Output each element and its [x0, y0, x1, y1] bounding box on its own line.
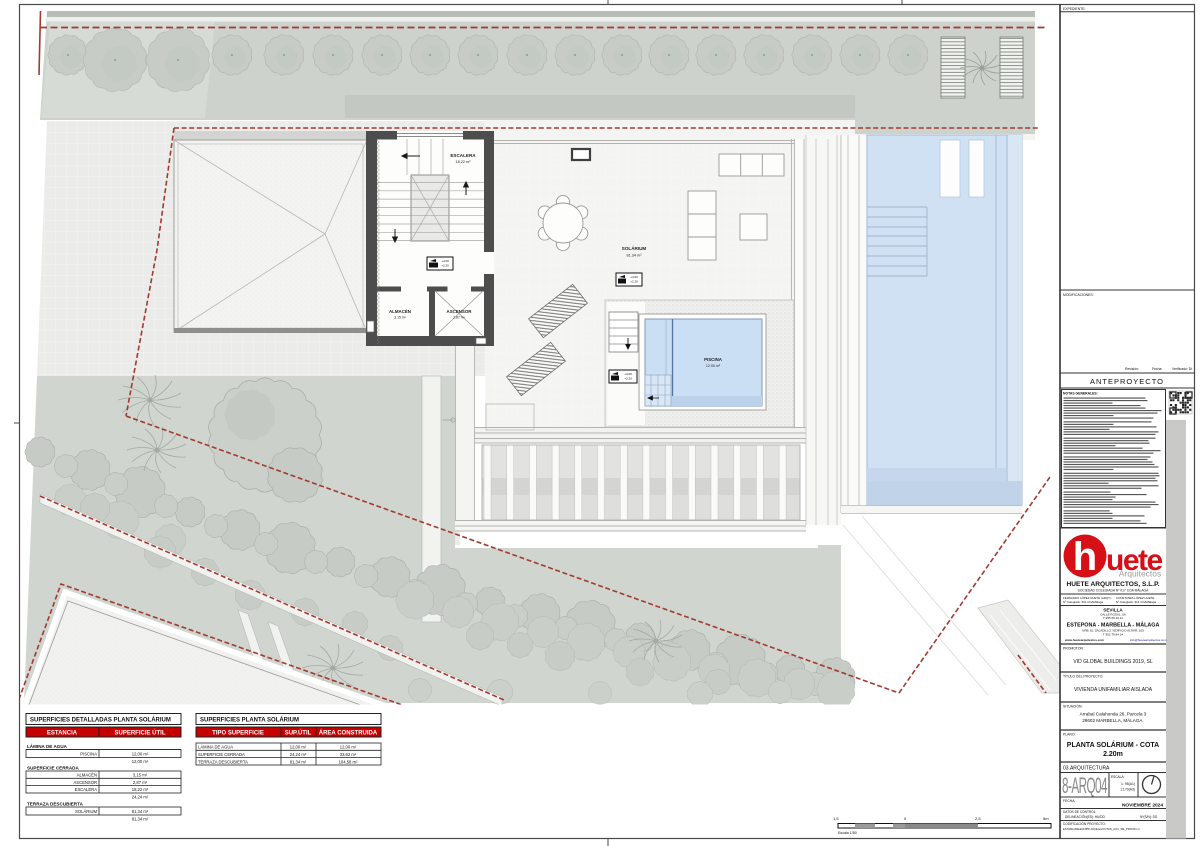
svg-text:ÁREA CONSTRUIDA: ÁREA CONSTRUIDA: [319, 730, 378, 737]
svg-text:81,34 m²: 81,34 m²: [132, 817, 149, 822]
svg-text:1,5: 1,5: [833, 816, 839, 821]
svg-text:3.15 m²: 3.15 m²: [394, 316, 406, 320]
svg-text:SOLÁRIUM: SOLÁRIUM: [75, 809, 97, 814]
svg-text:Nº(S/N): DD: Nº(S/N): DD: [1140, 815, 1158, 819]
svg-text:29602 MARBELLA, MÁLAGA.: 29602 MARBELLA, MÁLAGA.: [1082, 717, 1144, 723]
svg-text:+3.00: +3.00: [624, 372, 632, 376]
svg-text:SUPERFICIE ÚTIL: SUPERFICIE ÚTIL: [114, 730, 165, 737]
svg-text:Escala 1/50: Escala 1/50: [838, 831, 857, 835]
svg-text:PISCINA: PISCINA: [80, 752, 97, 757]
svg-text:5m: 5m: [1043, 816, 1049, 821]
svg-text:24,24 m²: 24,24 m²: [290, 752, 307, 757]
svg-text:81.34 m²: 81.34 m²: [627, 254, 643, 258]
svg-text:HUETE ARQUITECTOS, S.L.P.: HUETE ARQUITECTOS, S.L.P.: [1067, 581, 1160, 588]
svg-text:PROMOTOR :: PROMOTOR :: [1063, 647, 1085, 651]
svg-text:104,58 m²: 104,58 m²: [339, 759, 358, 764]
svg-text:T 955 69 32 11: T 955 69 32 11: [1103, 616, 1123, 620]
svg-text:LÁMINA DE AGUA: LÁMINA DE AGUA: [27, 743, 68, 749]
svg-text:ANTEPROYECTO: ANTEPROYECTO: [1090, 377, 1164, 386]
svg-text:2.87 m²: 2.87 m²: [453, 316, 465, 320]
svg-text:+2.20: +2.20: [441, 264, 449, 268]
svg-text:Arrabal Calahonda 26, Parcela: Arrabal Calahonda 26, Parcela 3: [1080, 712, 1147, 717]
svg-text:SOLÁRIUM: SOLÁRIUM: [622, 245, 647, 251]
svg-text:SUP.ÚTIL: SUP.ÚTIL: [285, 730, 312, 737]
svg-text:ESTEPONA - MARBELLA - MÁLAGA: ESTEPONA - MARBELLA - MÁLAGA: [1067, 622, 1160, 629]
svg-text:2,87 m²: 2,87 m²: [133, 780, 148, 785]
svg-text:ESTANCIA: ESTANCIA: [47, 731, 78, 737]
svg-text:+2.20: +2.20: [630, 280, 638, 284]
svg-text:TIPO SUPERFICIE: TIPO SUPERFICIE: [212, 731, 264, 737]
svg-text:3,15 m²: 3,15 m²: [133, 773, 148, 778]
svg-text:ESCALERA: ESCALERA: [75, 787, 98, 792]
svg-text:Revisión:: Revisión:: [1125, 367, 1139, 371]
svg-text:12.00 m²: 12.00 m²: [706, 364, 721, 368]
svg-text:TERRAZA DESCUBIERTA: TERRAZA DESCUBIERTA: [27, 802, 84, 807]
svg-text:18.22 m²: 18.22 m²: [456, 160, 472, 164]
svg-text:PISCINA: PISCINA: [704, 357, 723, 362]
svg-text:DATOS DE CONTROL:: DATOS DE CONTROL:: [1063, 810, 1096, 814]
svg-text:info@huetearquitectos.com: info@huetearquitectos.com: [1130, 638, 1167, 642]
svg-text:+4.00: +4.00: [441, 259, 449, 263]
svg-text:NOTAS GENERALES:: NOTAS GENERALES:: [1063, 392, 1098, 396]
svg-text:TÍTULO DEL PROYECTO:: TÍTULO DEL PROYECTO:: [1063, 675, 1103, 679]
svg-text:CODIFICACIÓN PROYECTO:: CODIFICACIÓN PROYECTO:: [1063, 821, 1106, 826]
svg-text:81,34 m²: 81,34 m²: [290, 759, 307, 764]
svg-text:SUPERFICIE CERRADA: SUPERFICIE CERRADA: [27, 766, 79, 771]
svg-text:PLANTA SOLÁRIUM - COTA: PLANTA SOLÁRIUM - COTA: [1067, 740, 1159, 749]
svg-text:ESTARLI/DEall/23PR.23/plicas/C: ESTARLI/DEall/23PR.23/plicas/COTAS_AUX_R…: [1063, 827, 1140, 831]
svg-text:VIVIENDA UNIFAMILIAR AISLADA: VIVIENDA UNIFAMILIAR AISLADA: [1074, 687, 1153, 693]
svg-text:ESCALERA: ESCALERA: [450, 153, 476, 158]
svg-text:24,24 m²: 24,24 m²: [132, 795, 149, 800]
svg-text:ALMACÉN: ALMACÉN: [389, 309, 411, 314]
svg-text:ALMACÉN: ALMACÉN: [77, 773, 97, 778]
svg-text:12,00 m²: 12,00 m²: [290, 745, 307, 750]
svg-text:8-ARQ04: 8-ARQ04: [1062, 773, 1107, 798]
svg-text:FECHA:: FECHA:: [1063, 799, 1075, 803]
svg-text:Fecha:: Fecha:: [1152, 367, 1162, 371]
svg-text:1: 95(A1): 1: 95(A1): [1121, 782, 1135, 786]
svg-text:NOVIEMBRE 2024: NOVIEMBRE 2024: [1122, 803, 1163, 809]
svg-text:12,00 m²: 12,00 m²: [132, 752, 149, 757]
svg-text:12,00 m²: 12,00 m²: [132, 759, 149, 764]
svg-text:ASCENSOR: ASCENSOR: [73, 780, 97, 785]
svg-text:81,34 m²: 81,34 m²: [132, 809, 149, 814]
svg-text:Nº Colegiado: 531 COAMálaga: Nº Colegiado: 531 COAMálaga: [1063, 600, 1103, 604]
svg-text:Arquitectos: Arquitectos: [1119, 569, 1162, 579]
svg-text:2,5: 2,5: [975, 816, 981, 821]
svg-text:+4.00: +4.00: [630, 275, 638, 279]
svg-text:12,00 m²: 12,00 m²: [340, 745, 357, 750]
svg-text:VID GLOBAL BUILDINGS 2019, SL: VID GLOBAL BUILDINGS 2019, SL: [1073, 659, 1153, 665]
svg-text:Nº Colegiado: 914 COAMálaga: Nº Colegiado: 914 COAMálaga: [1116, 600, 1156, 604]
svg-text:Verificado: Dt: Verificado: Dt: [1172, 367, 1192, 371]
svg-text:www.huetearquitectos.com: www.huetearquitectos.com: [1064, 638, 1104, 642]
svg-text:DELINEACIÓN(ES): HU/DD: DELINEACIÓN(ES): HU/DD: [1065, 814, 1106, 819]
svg-text:LÁMINA DE AGUA: LÁMINA DE AGUA: [198, 745, 233, 750]
svg-text:SOCIEDAD COLEGIADA Nº 017 COA: SOCIEDAD COLEGIADA Nº 017 COA MÁLAGA: [1078, 589, 1149, 593]
svg-text:PLANO:: PLANO:: [1063, 733, 1075, 737]
svg-text:EXPEDIENTE:: EXPEDIENTE:: [1063, 7, 1085, 11]
svg-text:T 952 79 84 14: T 952 79 84 14: [1103, 633, 1123, 637]
svg-text:18,22 m²: 18,22 m²: [132, 787, 149, 792]
svg-text:SUPERFICIES DETALLADAS PLANTA: SUPERFICIES DETALLADAS PLANTA SOLÁRIUM: [30, 717, 171, 724]
svg-text:1:170(A3): 1:170(A3): [1120, 788, 1135, 792]
svg-text:03.ARQUITECTURA: 03.ARQUITECTURA: [1063, 766, 1110, 772]
svg-text:SUPERFICIE CERRADA: SUPERFICIE CERRADA: [198, 752, 245, 757]
svg-text:2.20m: 2.20m: [1103, 751, 1123, 758]
svg-text:TERRAZA DESCUBIERTA: TERRAZA DESCUBIERTA: [198, 759, 248, 764]
svg-text:+2.20: +2.20: [624, 377, 632, 381]
svg-text:h: h: [1073, 535, 1097, 579]
svg-text:33,62 m²: 33,62 m²: [340, 752, 357, 757]
svg-text:SITUACIÓN:: SITUACIÓN:: [1063, 704, 1082, 709]
svg-text:ESCALA:: ESCALA:: [1111, 775, 1125, 779]
svg-text:SUPERFICIES PLANTA SOLÁRIUM: SUPERFICIES PLANTA SOLÁRIUM: [200, 717, 299, 724]
svg-text:ASCENSOR: ASCENSOR: [447, 309, 473, 314]
svg-text:MODIFICACIONES:: MODIFICACIONES:: [1063, 293, 1094, 297]
